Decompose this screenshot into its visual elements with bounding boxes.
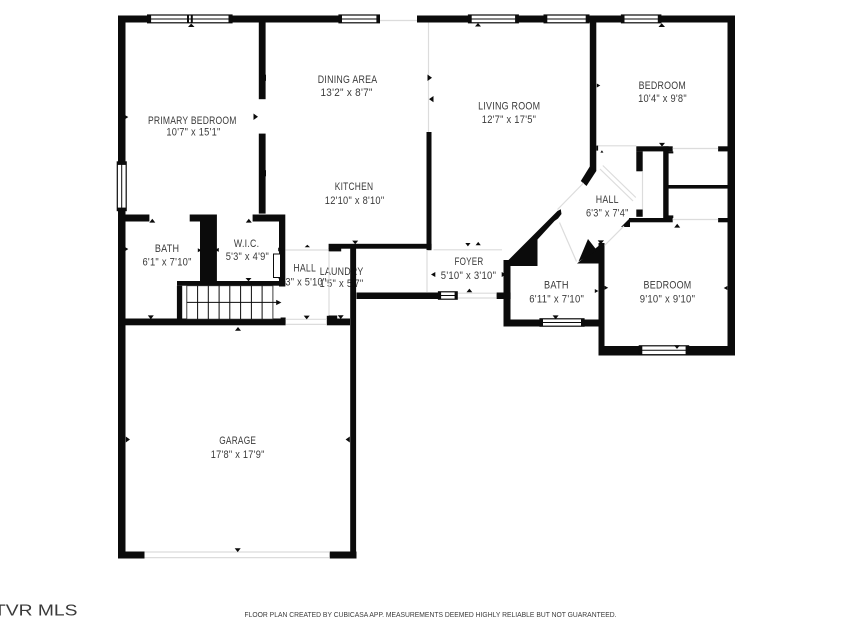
svg-text:LIVING ROOM: LIVING ROOM xyxy=(478,101,540,113)
svg-text:5'3" x 4'9": 5'3" x 4'9" xyxy=(226,251,269,263)
svg-text:17'8" x 17'9": 17'8" x 17'9" xyxy=(211,449,265,461)
svg-text:BEDROOM: BEDROOM xyxy=(644,280,692,292)
svg-text:DINING AREA: DINING AREA xyxy=(318,74,378,86)
svg-text:6'11" x 7'10": 6'11" x 7'10" xyxy=(529,293,584,305)
svg-text:5'10" x 3'10": 5'10" x 3'10" xyxy=(441,270,496,282)
svg-text:1'5" x 5'7": 1'5" x 5'7" xyxy=(320,278,364,290)
svg-text:W.I.C.: W.I.C. xyxy=(234,238,259,250)
svg-text:PRIMARY BEDROOM: PRIMARY BEDROOM xyxy=(148,115,237,127)
svg-text:BATH: BATH xyxy=(544,280,569,292)
svg-text:10'7" x 15'1": 10'7" x 15'1" xyxy=(166,127,220,139)
svg-text:6'1" x 7'10": 6'1" x 7'10" xyxy=(142,256,191,268)
svg-text:TVR MLS: TVR MLS xyxy=(0,603,78,620)
svg-text:6'3" x 7'4": 6'3" x 7'4" xyxy=(586,207,629,219)
svg-text:9'10" x 9'10": 9'10" x 9'10" xyxy=(640,293,695,305)
svg-text:13'2" x 8'7": 13'2" x 8'7" xyxy=(321,87,373,99)
svg-text:FLOOR PLAN CREATED BY CUBICASA: FLOOR PLAN CREATED BY CUBICASA APP. MEAS… xyxy=(245,610,617,619)
svg-text:GARAGE: GARAGE xyxy=(219,435,256,447)
svg-text:FOYER: FOYER xyxy=(455,256,484,268)
svg-text:12'7" x 17'5": 12'7" x 17'5" xyxy=(482,114,537,126)
svg-text:LAUNDRY: LAUNDRY xyxy=(320,266,364,278)
svg-text:BEDROOM: BEDROOM xyxy=(639,80,686,92)
svg-text:HALL: HALL xyxy=(596,194,619,206)
svg-text:HALL: HALL xyxy=(293,262,316,274)
svg-text:BATH: BATH xyxy=(155,243,179,255)
svg-text:10'4" x 9'8": 10'4" x 9'8" xyxy=(638,93,687,105)
svg-text:KITCHEN: KITCHEN xyxy=(335,181,374,193)
svg-text:12'10" x 8'10": 12'10" x 8'10" xyxy=(325,195,385,207)
